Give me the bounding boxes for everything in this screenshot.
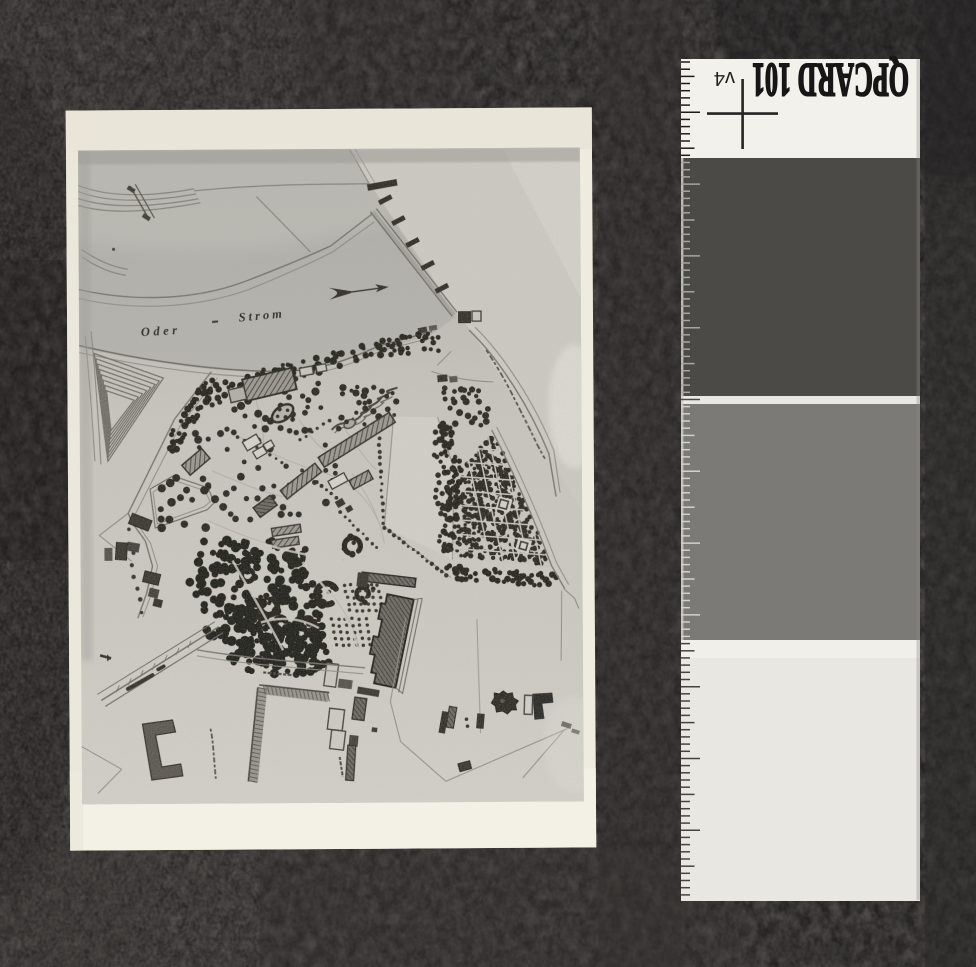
svg-text:QPCARD 101: QPCARD 101 [752, 53, 909, 106]
svg-text:v4: v4 [714, 67, 735, 89]
